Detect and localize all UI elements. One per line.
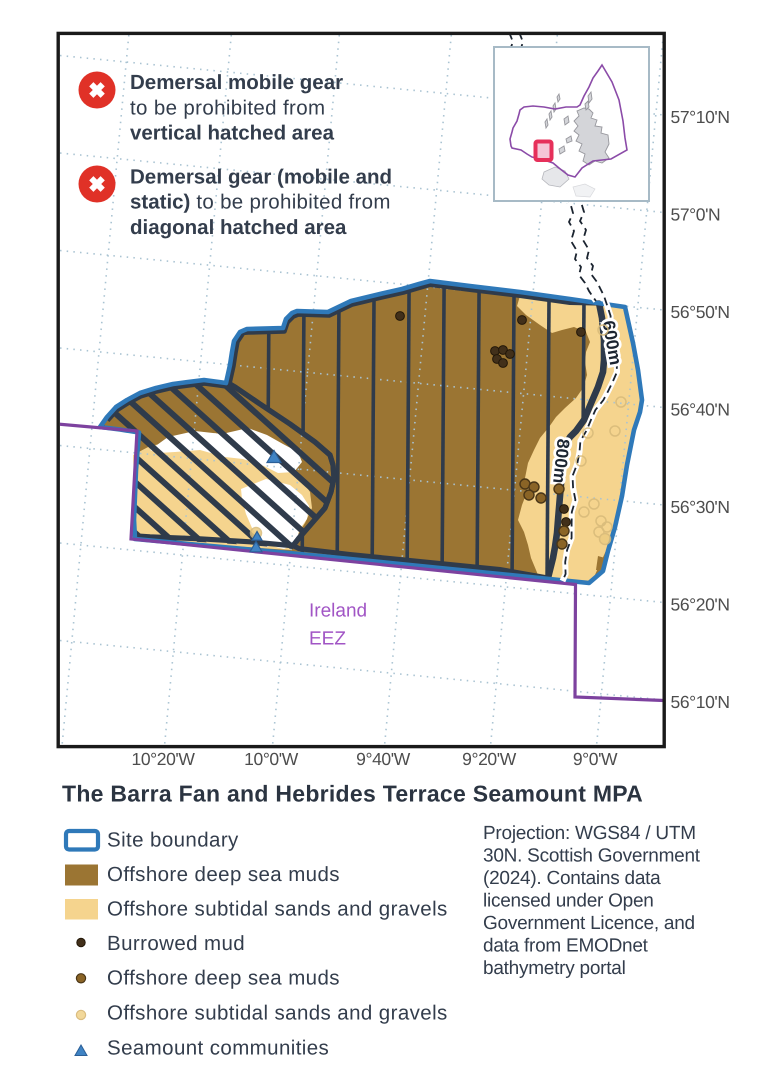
svg-text:9°40'W: 9°40'W bbox=[356, 749, 411, 769]
svg-text:56°50'N: 56°50'N bbox=[671, 302, 730, 322]
svg-text:EEZ: EEZ bbox=[309, 629, 346, 650]
svg-text:Demersal gear (mobile and: Demersal gear (mobile and bbox=[130, 165, 392, 188]
svg-text:56°40'N: 56°40'N bbox=[671, 400, 730, 420]
svg-text:Offshore deep sea muds: Offshore deep sea muds bbox=[107, 863, 340, 886]
svg-text:Site boundary: Site boundary bbox=[107, 829, 239, 852]
svg-text:56°10'N: 56°10'N bbox=[671, 692, 730, 712]
svg-text:diagonal hatched area: diagonal hatched area bbox=[130, 216, 347, 239]
svg-text:56°30'N: 56°30'N bbox=[671, 497, 730, 517]
svg-text:Projection: WGS84 / UTM: Projection: WGS84 / UTM bbox=[483, 823, 696, 844]
svg-text:Offshore deep sea muds: Offshore deep sea muds bbox=[107, 967, 340, 990]
svg-text:Demersal mobile gear: Demersal mobile gear bbox=[130, 71, 343, 94]
svg-text:Offshore subtidal sands and gr: Offshore subtidal sands and gravels bbox=[107, 1002, 448, 1025]
svg-text:Government Licence, and: Government Licence, and bbox=[483, 913, 695, 934]
svg-text:Ireland: Ireland bbox=[309, 601, 367, 622]
svg-text:(2024). Contains data: (2024). Contains data bbox=[483, 868, 661, 889]
svg-text:30N. Scottish Government: 30N. Scottish Government bbox=[483, 846, 701, 867]
svg-text:9°20'W: 9°20'W bbox=[462, 749, 517, 769]
svg-text:Seamount communities: Seamount communities bbox=[107, 1037, 329, 1060]
svg-text:57°10'N: 57°10'N bbox=[671, 107, 730, 127]
svg-text:bathymetry portal: bathymetry portal bbox=[483, 958, 626, 979]
svg-text:Burrowed mud: Burrowed mud bbox=[107, 932, 245, 955]
svg-text:9°0'W: 9°0'W bbox=[573, 749, 618, 769]
svg-text:Offshore subtidal sands and gr: Offshore subtidal sands and gravels bbox=[107, 898, 448, 921]
svg-text:data from EMODnet: data from EMODnet bbox=[483, 936, 649, 957]
svg-text:57°0'N: 57°0'N bbox=[671, 205, 721, 225]
svg-text:to be prohibited from: to be prohibited from bbox=[130, 96, 325, 119]
svg-text:56°20'N: 56°20'N bbox=[671, 595, 730, 615]
svg-text:vertical hatched area: vertical hatched area bbox=[130, 122, 335, 145]
svg-text:10°0'W: 10°0'W bbox=[244, 749, 299, 769]
svg-text:static) to be prohibited from: static) to be prohibited from bbox=[130, 191, 391, 214]
svg-text:10°20'W: 10°20'W bbox=[132, 749, 196, 769]
svg-text:The Barra Fan and Hebrides Ter: The Barra Fan and Hebrides Terrace Seamo… bbox=[62, 781, 643, 807]
svg-text:licensed under Open: licensed under Open bbox=[483, 891, 654, 912]
